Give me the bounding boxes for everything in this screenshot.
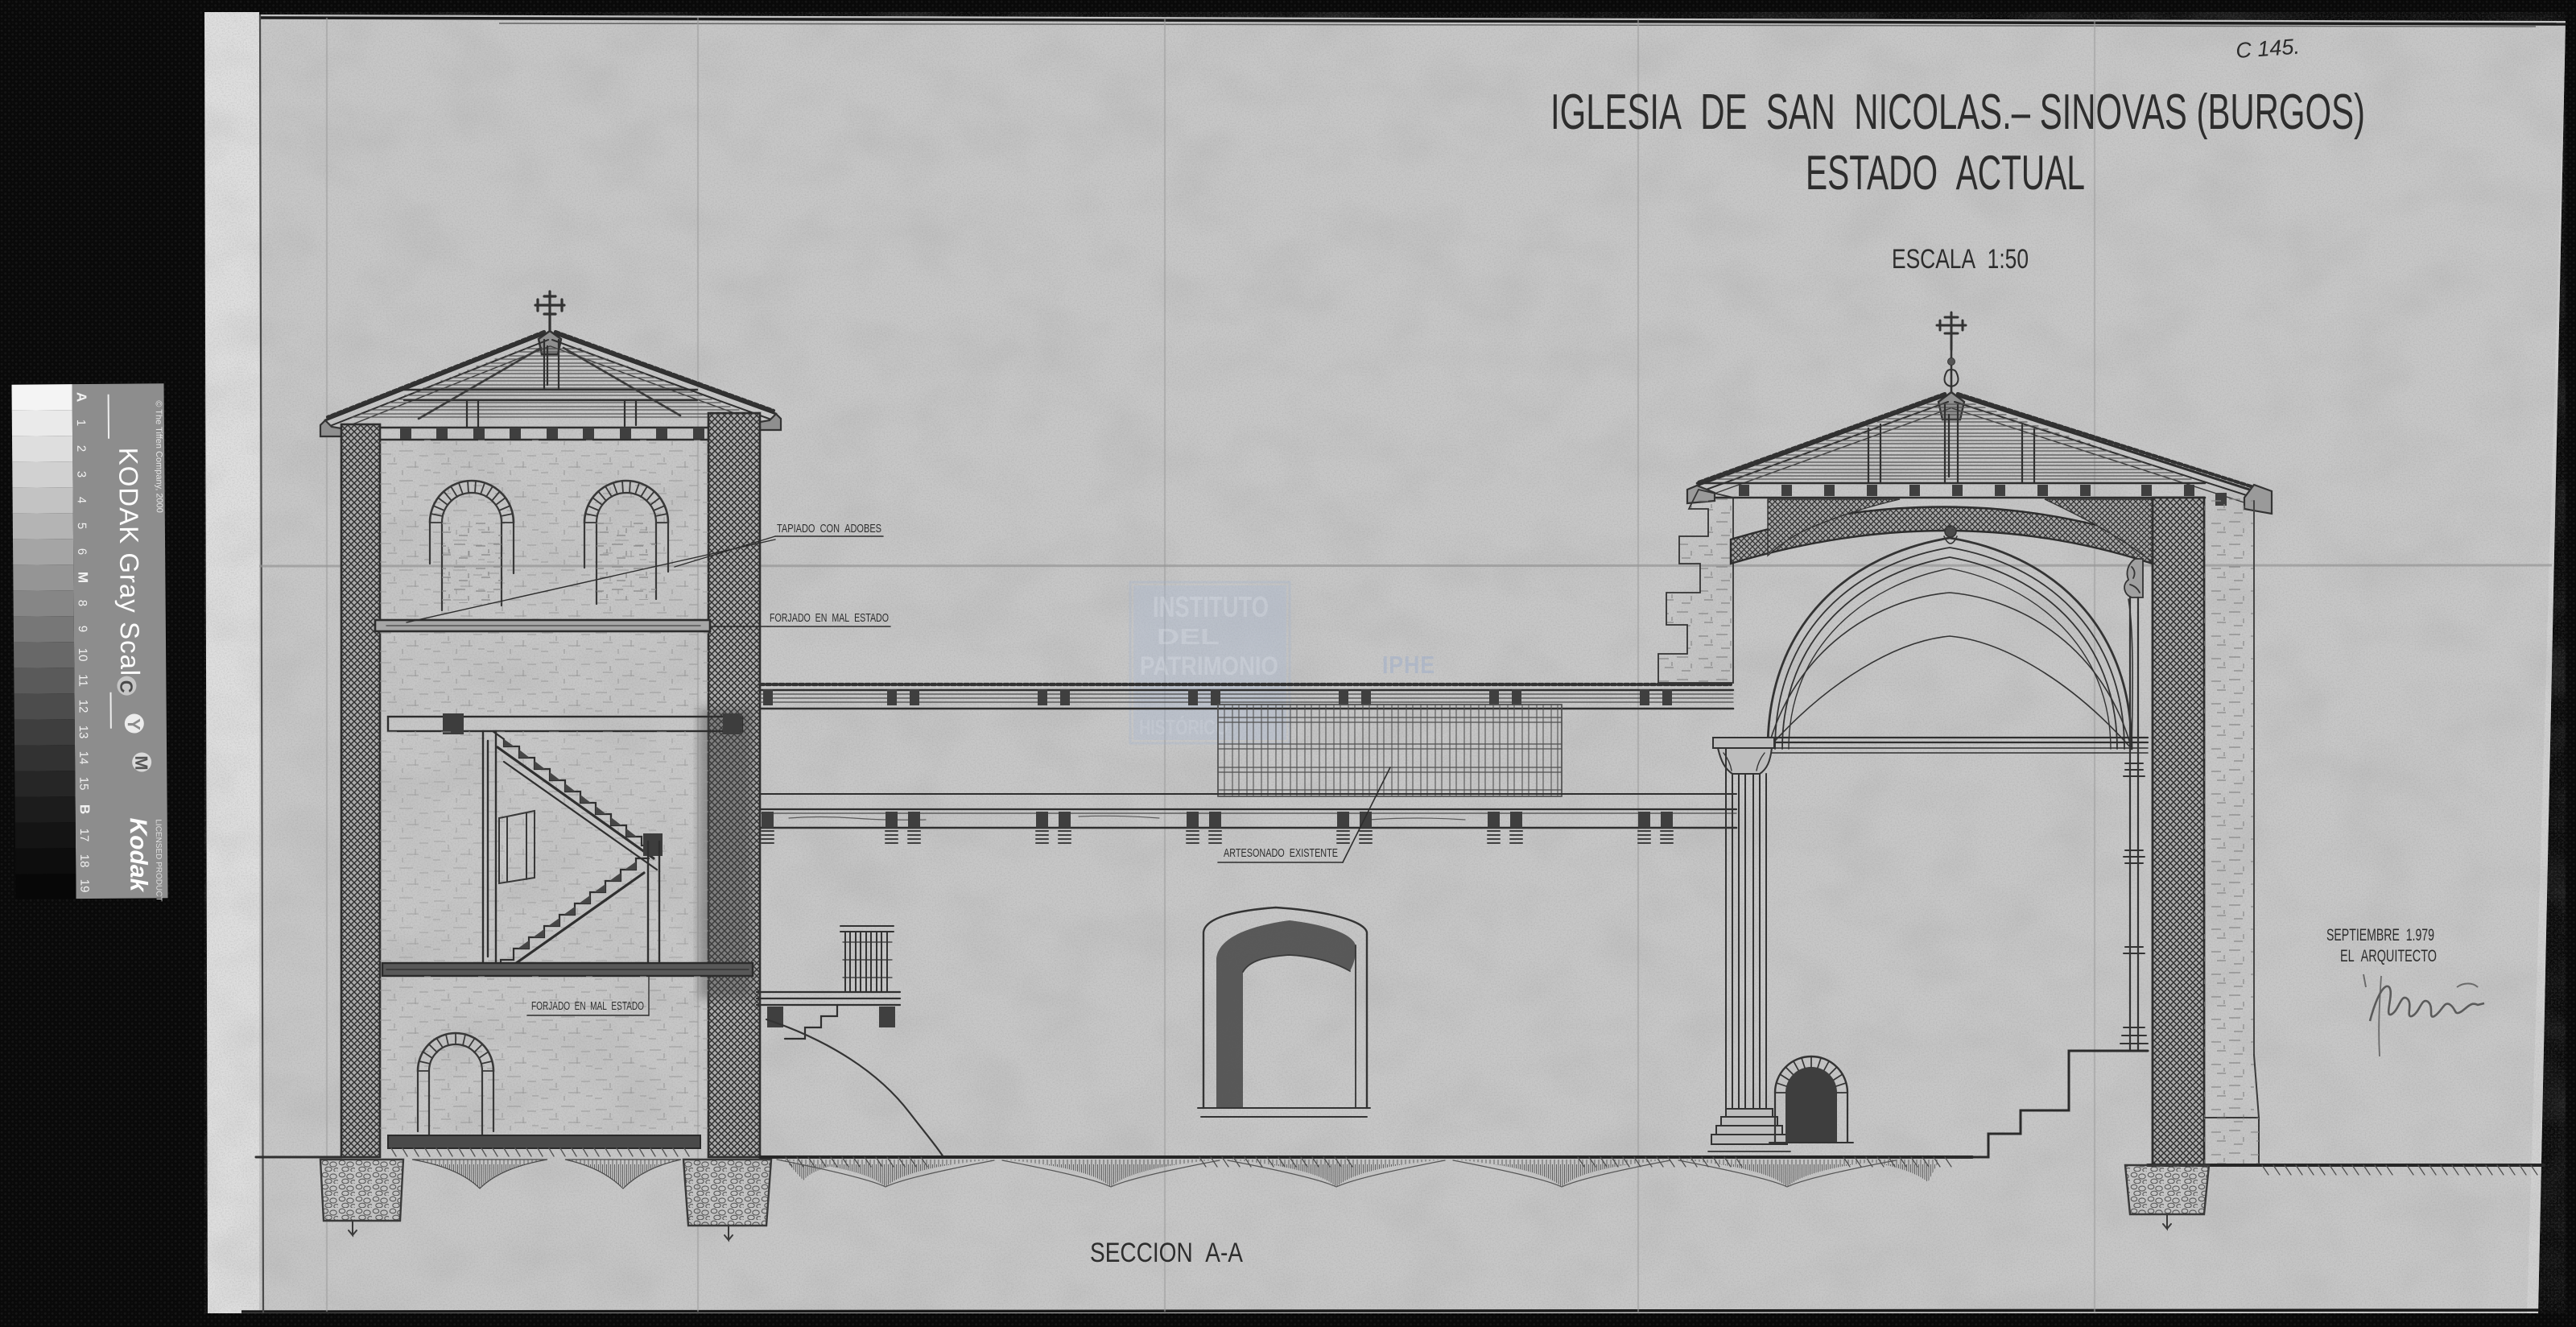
svg-text:4: 4 <box>75 497 89 503</box>
svg-text:3: 3 <box>74 471 88 477</box>
svg-text:19: 19 <box>77 879 91 893</box>
svg-text:DEL: DEL <box>1157 624 1220 649</box>
svg-text:TAPIADO CON ADOBES: TAPIADO CON ADOBES <box>777 522 881 535</box>
svg-text:HISTÓRICO: HISTÓRICO <box>1139 715 1228 739</box>
svg-text:Kodak: Kodak <box>125 817 152 892</box>
svg-text:EL ARQUITECTO: EL ARQUITECTO <box>2340 947 2437 965</box>
svg-text:10: 10 <box>76 648 89 662</box>
svg-text:B: B <box>77 804 93 814</box>
svg-text:ESCALA 1:50: ESCALA 1:50 <box>1892 244 2029 275</box>
svg-text:ARTESONADO EXISTENTE: ARTESONADO EXISTENTE <box>1224 846 1338 860</box>
svg-text:5: 5 <box>75 523 89 529</box>
svg-text:IGLESIA DE SAN NICOLAS.– SI: IGLESIA DE SAN NICOLAS.– SINOVAS (BURGOS… <box>1550 85 2365 140</box>
svg-text:15: 15 <box>76 777 90 791</box>
svg-text:INSTITUTO: INSTITUTO <box>1153 590 1269 623</box>
svg-text:17: 17 <box>77 829 91 842</box>
svg-text:2: 2 <box>74 445 88 452</box>
svg-text:ESTADO ACTUAL: ESTADO ACTUAL <box>1806 146 2085 200</box>
svg-text:C 145.: C 145. <box>2235 35 2300 63</box>
svg-text:13: 13 <box>76 726 90 739</box>
svg-text:14: 14 <box>76 751 90 765</box>
svg-text:SECCION A-A: SECCION A-A <box>1090 1238 1243 1268</box>
svg-text:SEPTIEMBRE 1.979: SEPTIEMBRE 1.979 <box>2326 926 2434 945</box>
svg-text:1: 1 <box>74 420 88 426</box>
svg-text:Y: Y <box>124 718 144 730</box>
svg-text:FORJADO EN MAL ESTADO: FORJADO EN MAL ESTADO <box>770 611 889 625</box>
svg-text:18: 18 <box>77 854 91 868</box>
svg-text:11: 11 <box>76 674 89 687</box>
svg-text:© The Tiffen Company, 2000: © The Tiffen Company, 2000 <box>154 400 164 513</box>
svg-text:FORJADO EN MAL ESTADO: FORJADO EN MAL ESTADO <box>531 999 644 1013</box>
svg-text:A: A <box>74 392 89 402</box>
svg-text:M: M <box>131 755 151 771</box>
svg-text:PATRIMONIO: PATRIMONIO <box>1140 651 1278 680</box>
svg-text:M: M <box>75 572 90 583</box>
svg-text:8: 8 <box>76 600 89 606</box>
svg-text:C: C <box>116 680 136 693</box>
svg-text:6: 6 <box>75 548 89 555</box>
svg-text:9: 9 <box>76 626 89 632</box>
svg-text:LICENSED PRODUCT: LICENSED PRODUCT <box>154 819 163 901</box>
svg-text:IPHE: IPHE <box>1382 651 1435 679</box>
svg-text:KODAK Gray Scale: KODAK Gray Scale <box>114 447 145 692</box>
svg-text:12: 12 <box>76 700 90 713</box>
